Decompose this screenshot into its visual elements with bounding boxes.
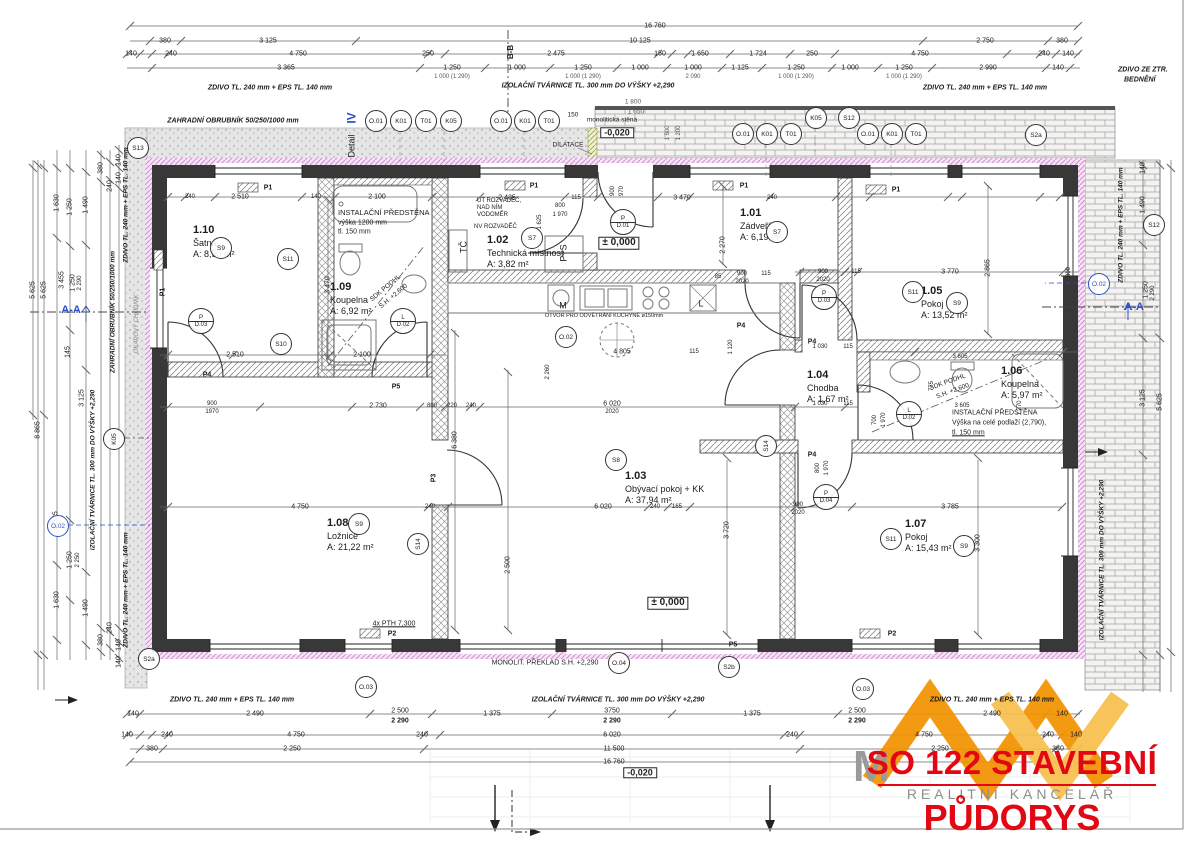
dim: 2 730	[369, 402, 387, 409]
dim: 1 625	[537, 214, 543, 229]
dim: 2 500	[504, 556, 511, 574]
ref-circle-O.01: O.01	[732, 123, 754, 145]
note: ZDIVO ZE ZTR.	[1118, 66, 1168, 73]
dim: 240	[1038, 50, 1050, 57]
lintel-label: P1	[264, 184, 273, 191]
dim: 2 500	[848, 707, 866, 714]
lintel-label: P5	[392, 383, 401, 390]
dim: 1 250	[66, 551, 73, 569]
note: A-A	[1124, 302, 1144, 314]
dim: 4 805	[613, 348, 631, 355]
note: Detail	[347, 134, 356, 157]
ref-circle-K01: K01	[514, 110, 536, 132]
dim: 10 125	[629, 37, 650, 44]
note: IV	[346, 112, 359, 123]
room-name: Koupelna	[1001, 379, 1043, 390]
dim: 3 125	[259, 37, 277, 44]
dim: 2 250	[75, 552, 81, 567]
dim: 1 724	[749, 50, 767, 57]
note: L	[698, 299, 703, 308]
ref-circle-O.03: O.03	[852, 678, 874, 700]
ref-circle-S9: S9	[953, 535, 975, 557]
note: IZOLAČNÍ TVÁRNICE TL. 300 mm DO VÝŠKY +2…	[1100, 480, 1107, 640]
dim: 1 250	[1142, 281, 1149, 299]
dim: 700	[872, 415, 878, 425]
dim: 1 125	[731, 64, 749, 71]
dim: 1 630	[53, 194, 60, 212]
dim: 140	[125, 50, 137, 57]
dim: 2 990	[979, 64, 997, 71]
dim: 1 490	[1139, 196, 1146, 214]
dim: 140	[311, 194, 321, 200]
dim: 2 750	[976, 37, 994, 44]
note: M	[559, 301, 567, 310]
dim: 2 510	[226, 351, 244, 358]
dim: 4 750	[911, 50, 929, 57]
room-area: A: 15,43 m²	[905, 543, 952, 554]
note: tl. 150 mm	[952, 429, 985, 436]
dim: 1 630	[53, 591, 60, 609]
ref-circle-S14: S14	[407, 533, 429, 555]
room-name: Koupelna	[330, 295, 372, 306]
dim: 2 290	[848, 717, 866, 724]
dim: 1 970	[881, 412, 887, 427]
dim: 5 625	[29, 281, 36, 299]
note: -0,020	[600, 127, 634, 138]
note: A-A	[61, 305, 81, 317]
ref-circle-S10: S10	[270, 333, 292, 355]
room-label-1.06: 1.06KoupelnaA: 5,97 m²	[1001, 365, 1043, 401]
dim: 1 000 (1 290)	[778, 74, 814, 80]
ref-circle-S13: S13	[127, 137, 149, 159]
dim: 115	[761, 271, 771, 277]
dim: 140	[1062, 50, 1074, 57]
dim: 1 490	[82, 196, 89, 214]
room-number: 1.07	[905, 518, 952, 532]
ref-circle-O.01: O.01	[857, 123, 879, 145]
dim: 1 970	[552, 212, 567, 218]
dim: 8 865	[34, 421, 41, 439]
door-ref-D.03: PD.03	[811, 284, 837, 310]
note: VODOMĚR	[477, 212, 508, 218]
dim: 6 020	[594, 503, 612, 510]
room-number: 1.01	[740, 207, 782, 221]
dim: 140	[127, 710, 139, 717]
note: OTVOR PRO ODVĚTRÁNÍ KUCHYNĚ ø150mm	[545, 314, 663, 320]
dim: 800	[555, 203, 565, 209]
lintel-label: P1	[530, 182, 539, 189]
ref-circle-O.02: O.02	[555, 326, 577, 348]
dim: 1 250	[66, 198, 73, 216]
door-ref-D.02: LD.02	[896, 401, 922, 427]
note: IZOLAČNÍ TVÁRNICE TL. 300 mm DO VÝŠKY +2…	[502, 82, 675, 89]
dim: 140	[115, 639, 122, 651]
door-ref-D.03: PD.03	[188, 308, 214, 334]
note: ZDIVO TL. 240 mm + EPS TL. 140 mm	[124, 147, 131, 262]
dim: 240	[425, 504, 435, 510]
dim: 1 000 (1 290)	[434, 74, 470, 80]
dim: 140	[121, 731, 133, 738]
floor-plan-sheet: ZAHRADNÍ OBRUBNÍK 50/250/1000 mmDetailIV…	[0, 0, 1190, 841]
dim: 240	[416, 731, 428, 738]
note: TČ	[459, 241, 468, 253]
ref-circle-T01: T01	[538, 110, 560, 132]
dim: 3 720	[723, 521, 730, 539]
dim: 3 605	[954, 403, 969, 409]
dim: 1 000 (1 290)	[886, 74, 922, 80]
note: ZDIVO TL. 240 mm + EPS TL. 140 mm	[170, 696, 294, 703]
dim: 3 605	[952, 354, 967, 360]
dim: 2020	[791, 510, 804, 516]
ref-circle-S7: S7	[521, 227, 543, 249]
dim: 3 125	[1139, 389, 1146, 407]
dim: 140	[1139, 162, 1146, 174]
title-divider	[878, 784, 1156, 786]
note: 1 500	[665, 125, 671, 140]
note: 150	[568, 113, 579, 120]
ref-circle-S14: S14	[755, 435, 777, 457]
dim: 115	[689, 349, 699, 355]
dim: 115	[843, 344, 853, 350]
door-ref-D.04: PD.04	[813, 484, 839, 510]
dim: 1 375	[743, 710, 761, 717]
room-label-1.09: 1.09KoupelnaA: 6,92 m²	[330, 281, 372, 317]
dim: 150	[654, 50, 666, 57]
dim: 2 260	[545, 364, 551, 379]
ref-circle-S11: S11	[880, 528, 902, 550]
room-name: Obývací pokoj + KK	[625, 484, 704, 495]
ref-circle-K01: K01	[390, 110, 412, 132]
dim: 5 625	[1156, 393, 1163, 411]
dim: 250	[422, 50, 434, 57]
dim: 4 750	[291, 503, 309, 510]
dim: 3 365	[277, 64, 295, 71]
dim: 3 125	[78, 389, 85, 407]
note: ZDIVO TL. 240 mm + EPS TL. 140 mm	[1119, 167, 1126, 282]
note: ZDIVO TL. 240 mm + EPS TL. 140 mm	[923, 84, 1047, 91]
dim: 16 760	[644, 22, 665, 29]
dim: 4 750	[915, 731, 933, 738]
room-area: A: 6,92 m²	[330, 306, 372, 317]
dim: 900	[818, 269, 828, 275]
dim: 2 290	[1150, 285, 1156, 300]
room-name: Ložnice	[327, 531, 374, 542]
dim: 1 000 (1 290)	[565, 74, 601, 80]
dim: 3 455	[58, 271, 65, 289]
note: INSTALAČNÍ PŘEDSTĚNA	[338, 209, 430, 217]
room-area: A: 3,82 m²	[487, 259, 564, 270]
dim: 2 490	[983, 710, 1001, 717]
lintel-label: P1	[159, 288, 166, 297]
ref-circle-O.01: O.01	[365, 110, 387, 132]
door-ref-D.02: LD.02	[390, 308, 416, 334]
dim: 4 750	[289, 50, 307, 57]
dim: 2 100	[353, 351, 371, 358]
ref-circle-O.02: O.02	[47, 515, 69, 537]
dim: 1 000	[508, 64, 526, 71]
dim: 970	[619, 186, 625, 196]
ref-circle-O.01: O.01	[490, 110, 512, 132]
ref-circle-K01: K01	[881, 123, 903, 145]
dim: 4 750	[287, 731, 305, 738]
note: ZAHRADNÍ OBRUBNÍK 50/250/1000 mm	[167, 117, 298, 124]
room-number: 1.09	[330, 281, 372, 295]
note: ZAHRADNÍ OBRUBNÍK 50/250/1000 mm	[111, 251, 118, 373]
note: ZDIVO TL. 240 mm + EPS TL. 140 mm	[208, 84, 332, 91]
lintel-label: P4	[203, 371, 212, 378]
dim: 2 510	[231, 193, 249, 200]
dim: 11 500	[604, 745, 625, 752]
dim: 140	[115, 172, 122, 184]
dim: 240	[185, 194, 195, 200]
note: DILATACE	[553, 143, 584, 150]
ref-circle-K05: K05	[805, 107, 827, 129]
dim: 6 380	[451, 431, 458, 449]
ref-circle-S2a: S2a	[138, 648, 160, 670]
dim: 1 000	[631, 64, 649, 71]
dim: 2020	[605, 409, 618, 415]
dim: 240	[106, 180, 113, 192]
note: monolitická stěna	[587, 118, 637, 125]
dim: 1 250	[574, 64, 592, 71]
dim: 6 020	[603, 731, 621, 738]
dim: 2 290	[391, 717, 409, 724]
dim: 2 490	[246, 710, 264, 717]
dim: 2 865	[984, 259, 991, 277]
dim: 145	[64, 346, 71, 358]
ref-circle-S9: S9	[210, 237, 232, 259]
dim: 3 785	[941, 503, 959, 510]
note: BEDNĚNÍ	[1124, 76, 1156, 83]
room-number: 1.06	[1001, 365, 1043, 379]
room-name: Pokoj	[905, 532, 952, 543]
note: -0,020	[623, 767, 657, 778]
ref-circle-T01: T01	[780, 123, 802, 145]
dim: 1 000	[841, 64, 859, 71]
dim: 2020	[816, 277, 829, 283]
room-name: Chodba	[807, 383, 849, 394]
dim: 1 120	[728, 339, 734, 354]
lintel-label: P4	[808, 338, 817, 345]
dim: 775	[929, 381, 935, 391]
dim: 140	[115, 154, 122, 166]
note: IZOLAČNÍ TVÁRNICE TL. 300 mm DO VÝŠKY +2…	[532, 696, 705, 703]
lintel-label: P1	[892, 186, 901, 193]
dim: 2 090	[685, 74, 700, 80]
dim: 240	[165, 50, 177, 57]
ref-circle-K05: K05	[103, 428, 125, 450]
note: B-B	[507, 45, 515, 59]
dim: 85	[715, 274, 722, 280]
ref-circle-S11: S11	[277, 248, 299, 270]
dim: 1 250	[787, 64, 805, 71]
dim: 140	[1070, 731, 1082, 738]
ref-circle-S2b: S2b	[718, 656, 740, 678]
dim: 1970	[205, 409, 218, 415]
dim: 3750	[604, 707, 620, 714]
dim: 900	[737, 271, 747, 277]
dim: 240	[161, 731, 173, 738]
note: 1 650	[628, 110, 644, 117]
dim: 2 290	[603, 717, 621, 724]
title-line-1: SO 122 STAVEBNÍ	[862, 744, 1162, 782]
dim: 250	[806, 50, 818, 57]
lintel-label: P2	[388, 630, 397, 637]
ref-circle-S12: S12	[1143, 214, 1165, 236]
title-line-2: PŮDORYS M:1:50	[862, 797, 1162, 841]
dim: 380	[146, 745, 158, 752]
dim: 220	[447, 403, 457, 409]
room-number: 1.03	[625, 470, 704, 484]
ref-circle-S11: S11	[902, 281, 924, 303]
dim: 380	[97, 634, 104, 646]
ref-circle-S8: S8	[605, 449, 627, 471]
door-ref-D.01: PD.01	[610, 209, 636, 235]
dim: 1 375	[483, 710, 501, 717]
ref-circle-T01: T01	[905, 123, 927, 145]
room-label-1.03: 1.03Obývací pokoj + KKA: 37,94 m²	[625, 470, 704, 506]
lintel-label: P2	[888, 630, 897, 637]
dim: 1 970	[824, 460, 830, 475]
dim: 2 435	[498, 194, 516, 201]
ref-circle-S12: S12	[838, 107, 860, 129]
dim: 800	[815, 463, 821, 473]
ref-circle-K05: K05	[440, 110, 462, 132]
note: OKAPOVÝ CHODNÍK	[134, 295, 140, 354]
dim: 140	[1056, 710, 1068, 717]
dim: 900	[207, 401, 217, 407]
room-label-1.07: 1.07PokojA: 15,43 m²	[905, 518, 952, 554]
lintel-label: P3	[430, 474, 437, 483]
dim: 380	[1056, 37, 1068, 44]
note: 1 800	[625, 100, 641, 107]
note: NAD NÍM	[477, 205, 502, 211]
dim: 240	[786, 731, 798, 738]
note: NV ROZVADĚČ	[474, 224, 517, 230]
dim: 2020	[735, 279, 748, 285]
room-area: A: 21,22 m²	[327, 542, 374, 553]
ref-circle-S7: S7	[766, 221, 788, 243]
note: ± 0,000	[598, 237, 639, 250]
dim: 3 300	[974, 534, 981, 552]
dim: 2 250	[283, 745, 301, 752]
dim: 1 250	[895, 64, 913, 71]
dim: 1 250	[443, 64, 461, 71]
dim: 5 625	[40, 281, 47, 299]
dim: 380	[97, 162, 104, 174]
lintel-label: P5	[729, 641, 738, 648]
dim: 16 760	[603, 758, 624, 765]
room-number: 1.04	[807, 369, 849, 383]
dim: 1 250	[69, 274, 76, 292]
dim: 2 500	[391, 707, 409, 714]
room-label-1.04: 1.04ChodbaA: 1,67 m²	[807, 369, 849, 405]
dim: 1 650	[691, 50, 709, 57]
ref-circle-K01: K01	[756, 123, 778, 145]
ref-circle-O.04: O.04	[608, 652, 630, 674]
dim: 2 290	[77, 275, 83, 290]
dim: 6 020	[603, 400, 621, 407]
note: výška 1200 mm	[338, 219, 387, 226]
ref-circle-O.03: O.03	[355, 676, 377, 698]
note: 1 200	[676, 125, 682, 140]
dim: 3 770	[941, 268, 959, 275]
dim: 240	[1042, 731, 1054, 738]
dim: 3 470	[673, 194, 691, 201]
room-number: 1.10	[193, 224, 235, 238]
ref-circle-S9: S9	[946, 292, 968, 314]
room-area: A: 1,67 m²	[807, 394, 849, 405]
note: MONOLIT. PŘEKLAD S.H. +2,290	[492, 659, 599, 666]
dim: 1 490	[82, 599, 89, 617]
dim: 1 000	[684, 64, 702, 71]
room-area: A: 5,97 m²	[1001, 390, 1043, 401]
dim: 900	[793, 502, 803, 508]
dim: 2 100	[368, 193, 386, 200]
lintel-label: P4	[737, 322, 746, 329]
dim: 900	[610, 186, 616, 196]
dim: 115	[851, 269, 861, 275]
note: ± 0,000	[647, 597, 688, 610]
dim: 1 770	[1017, 400, 1023, 415]
text-overlay: ZAHRADNÍ OBRUBNÍK 50/250/1000 mmDetailIV…	[0, 0, 1190, 841]
dim: 140	[115, 656, 122, 668]
dim: 300	[1066, 267, 1072, 277]
note: ZDIVO TL. 240 mm + EPS TL. 140 mm	[930, 696, 1054, 703]
dim: 800	[427, 403, 437, 409]
dim: 115	[571, 195, 581, 201]
room-name: Technická místnost	[487, 248, 564, 259]
dim: 2 270	[719, 236, 726, 254]
ref-circle-T01: T01	[415, 110, 437, 132]
dim: 140	[1052, 64, 1064, 71]
note: IZOLAČNÍ TVÁRNICE TL. 300 mm DO VÝŠKY +2…	[91, 390, 98, 550]
lintel-label: P1	[740, 182, 749, 189]
note: tl. 150 mm	[338, 228, 371, 235]
note: ZDIVO TL. 240 mm + EPS TL. 140 mm	[124, 532, 131, 647]
dim: 380	[159, 37, 171, 44]
ref-circle-O.02: O.02	[1088, 273, 1110, 295]
note: 4x PTH 7,300	[373, 620, 416, 627]
dim: 240	[767, 195, 777, 201]
dim: 2 475	[547, 50, 565, 57]
room-area: A: 37,94 m²	[625, 495, 704, 506]
ref-circle-S2a: S2a	[1025, 124, 1047, 146]
dim: 240	[466, 403, 476, 409]
note: Výška na celé podlaží (2,790),	[952, 419, 1046, 426]
note: INSTALAČNÍ PŘEDSTĚNA	[952, 409, 1037, 416]
ref-circle-S9: S9	[348, 513, 370, 535]
lintel-label: P4	[808, 451, 817, 458]
dim: 240	[106, 622, 113, 634]
